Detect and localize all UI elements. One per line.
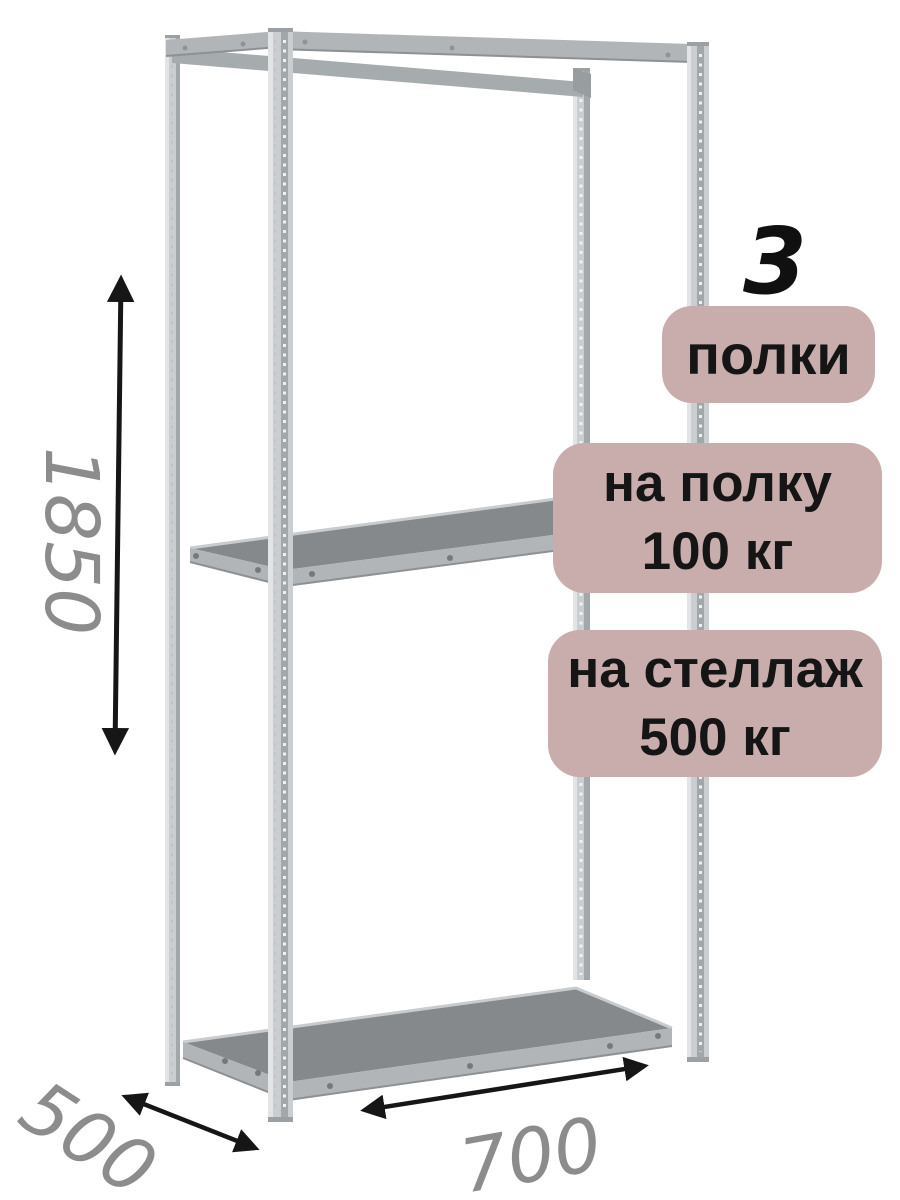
shelf-load-text-line1: на полку xyxy=(603,450,832,518)
shelf-count-badge: полки xyxy=(662,306,875,403)
rack-load-text-line1: на стеллаж xyxy=(567,636,863,704)
rack-post-front-left xyxy=(268,28,293,1122)
width-dimension-label: 700 xyxy=(455,1107,607,1200)
height-arrow xyxy=(115,280,121,750)
height-dimension-label: 1850 xyxy=(34,447,108,635)
shelf-count-number: 3 xyxy=(743,216,807,308)
bottom-shelf xyxy=(183,988,672,1100)
shelf-load-badge: на полку 100 кг xyxy=(553,443,882,593)
rack-load-badge: на стеллаж 500 кг xyxy=(548,630,882,777)
shelving-rack-illustration xyxy=(0,0,900,1200)
shelf-load-text-line2: 100 кг xyxy=(642,518,794,586)
product-image: 1850 500 700 3 полки на полку 100 кг на … xyxy=(0,0,900,1200)
rack-post-back-left xyxy=(165,35,180,1086)
rack-load-text-line2: 500 кг xyxy=(639,704,791,772)
shelf-count-label: полки xyxy=(686,319,851,391)
